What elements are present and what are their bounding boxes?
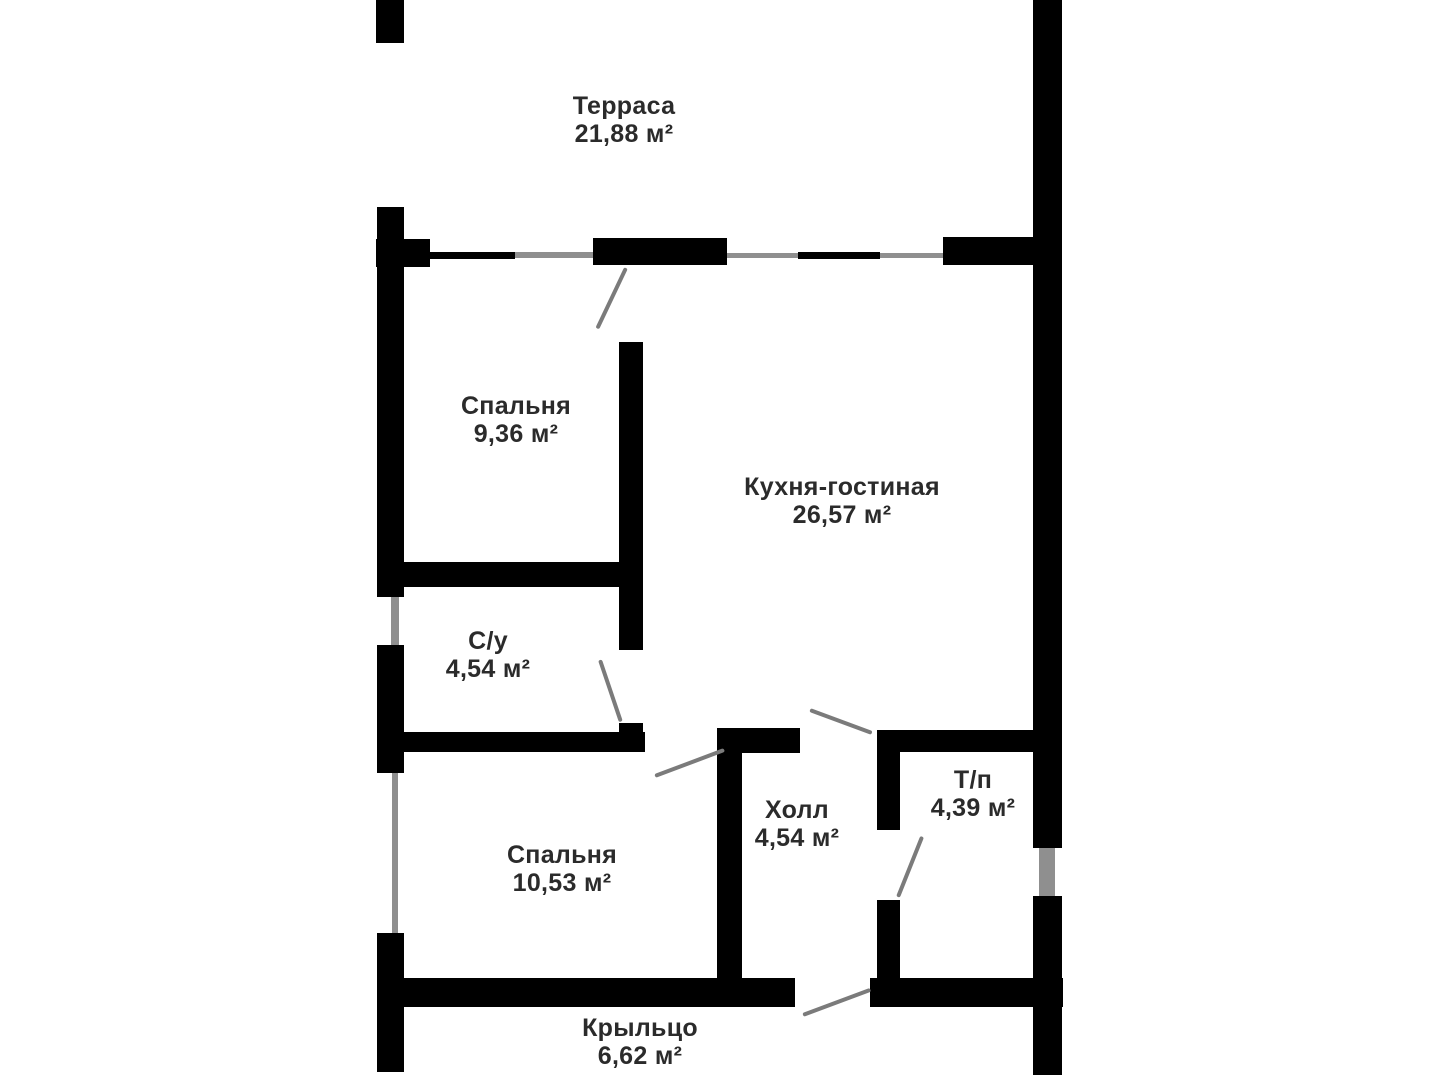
wall-bedroom1-kitchen <box>619 342 643 650</box>
wall-bathroom-bottom <box>404 732 645 752</box>
wall-hall-tp-lower <box>877 900 900 982</box>
room-area: 9,36 м² <box>461 420 571 448</box>
wall-left-b <box>377 645 404 773</box>
window-terrace-1 <box>515 252 593 258</box>
room-label-hall: Холл 4,54 м² <box>755 796 840 852</box>
window-bedroom2 <box>392 773 398 933</box>
wall-terrace-mullion-r <box>798 252 880 259</box>
door-leaf-kitchen-hall <box>809 708 872 735</box>
wall-left-a <box>377 207 404 597</box>
wall-hall-left <box>717 728 742 1007</box>
wall-terrace-mid <box>593 238 727 265</box>
room-name: Терраса <box>573 92 676 120</box>
room-area: 21,88 м² <box>573 120 676 148</box>
room-label-bedroom2: Спальня 10,53 м² <box>507 841 617 897</box>
room-label-tp: Т/п 4,39 м² <box>931 766 1016 822</box>
window-terrace-2 <box>727 253 798 258</box>
door-leaf-bedroom1 <box>595 267 627 329</box>
wall-hall-tp-upper <box>877 730 900 830</box>
wall-bottom-right <box>870 978 1063 1007</box>
room-area: 26,57 м² <box>744 501 940 529</box>
door-leaf-bathroom <box>598 659 623 722</box>
room-name: Крыльцо <box>582 1014 698 1042</box>
room-area: 4,54 м² <box>446 655 531 683</box>
wall-terrace-mullion-l <box>430 252 515 259</box>
room-name: Спальня <box>461 392 571 420</box>
wall-tp-top <box>877 730 1033 752</box>
room-name: Спальня <box>507 841 617 869</box>
room-area: 4,39 м² <box>931 794 1016 822</box>
window-bathroom <box>391 597 399 645</box>
room-name: Кухня-гостиная <box>744 473 940 501</box>
window-terrace-3 <box>880 253 943 258</box>
wall-bedroom1-bottom <box>404 562 620 587</box>
room-label-bathroom: С/у 4,54 м² <box>446 627 531 683</box>
room-label-bedroom1: Спальня 9,36 м² <box>461 392 571 448</box>
room-name: Холл <box>755 796 840 824</box>
door-leaf-entrance <box>802 988 871 1017</box>
room-area: 4,54 м² <box>755 824 840 852</box>
door-leaf-tp <box>896 836 924 898</box>
wall-top-left-block <box>376 0 404 43</box>
wall-bathroom-door-jamb <box>619 723 643 752</box>
wall-bottom-left <box>404 978 795 1007</box>
room-label-porch: Крыльцо 6,62 м² <box>582 1014 698 1070</box>
room-name: Т/п <box>931 766 1016 794</box>
window-tp-right <box>1039 848 1055 896</box>
room-area: 10,53 м² <box>507 869 617 897</box>
wall-hall-top <box>717 728 800 753</box>
room-label-terrace: Терраса 21,88 м² <box>573 92 676 148</box>
room-label-kitchen: Кухня-гостиная 26,57 м² <box>744 473 940 529</box>
floor-plan: Терраса 21,88 м² Спальня 9,36 м² Кухня-г… <box>0 0 1440 1080</box>
wall-right-upper <box>1033 0 1062 848</box>
room-area: 6,62 м² <box>582 1042 698 1070</box>
wall-terrace-right <box>943 237 1033 265</box>
room-name: С/у <box>446 627 531 655</box>
wall-left-c <box>377 933 404 1072</box>
door-leaf-bedroom2 <box>654 748 725 778</box>
